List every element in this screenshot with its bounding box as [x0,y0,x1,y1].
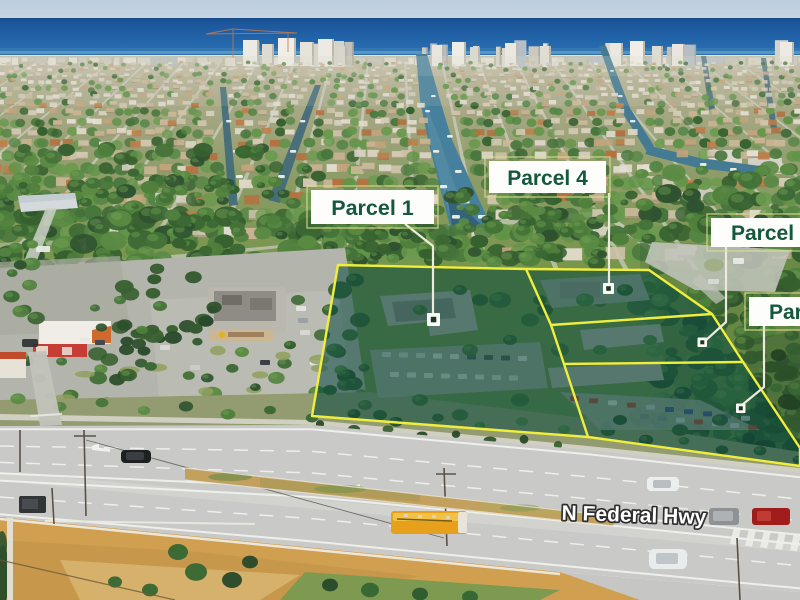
svg-text:Parcel 2: Parcel 2 [731,222,800,245]
svg-text:Parcel 4: Parcel 4 [507,167,588,190]
svg-text:N Federal Hwy: N Federal Hwy [561,502,707,530]
svg-text:Parcel 1: Parcel 1 [331,196,414,220]
svg-text:Parcel 3: Parcel 3 [769,301,800,324]
